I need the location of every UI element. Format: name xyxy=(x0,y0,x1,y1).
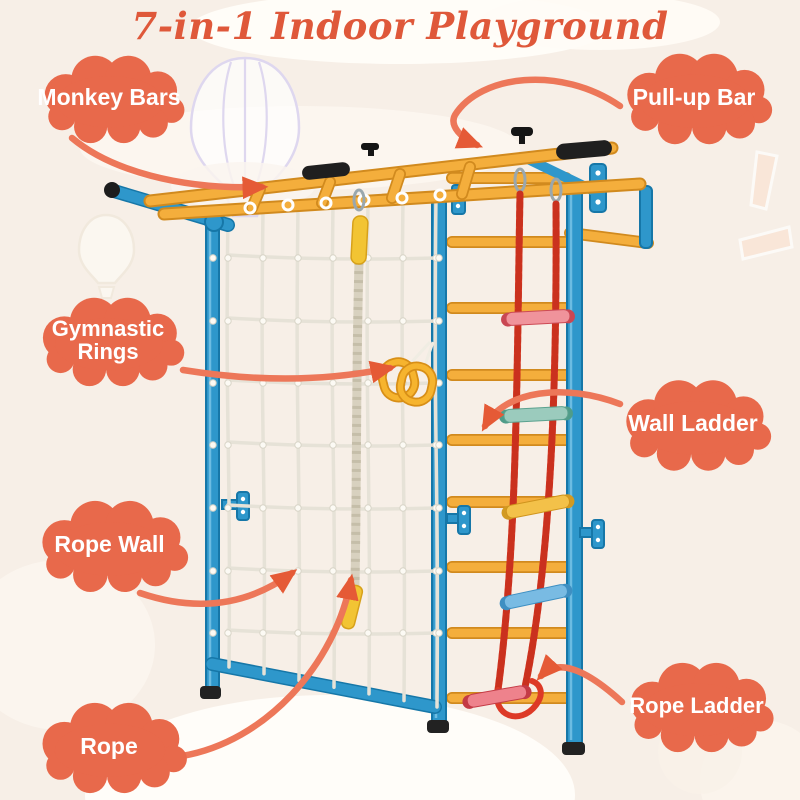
callout-gymnastic-rings: Gymnastic Rings xyxy=(27,295,189,388)
callout-label: Rope Ladder xyxy=(615,660,778,754)
callout-rope: Rope xyxy=(28,700,190,795)
callout-rope-wall: Rope Wall xyxy=(28,498,191,594)
callout-rope-ladder: Rope Ladder xyxy=(615,660,778,754)
gymnastic-rings-arrow xyxy=(183,368,390,379)
callout-wall-ladder: Wall Ladder xyxy=(612,377,774,473)
wall-ladder-arrow xyxy=(485,392,620,426)
callout-monkey-bars: Monkey Bars xyxy=(28,53,190,145)
callout-label: Rope Wall xyxy=(28,498,191,594)
callout-label: Gymnastic Rings xyxy=(27,295,189,388)
pull-up-bar-arrow xyxy=(454,80,620,145)
page-title: 7-in-1 Indoor Playground xyxy=(0,4,800,48)
callout-pull-up-bar: Pull-up Bar xyxy=(613,50,775,147)
callout-label: Rope xyxy=(28,700,190,795)
callout-label: Pull-up Bar xyxy=(613,50,775,147)
callout-label: Wall Ladder xyxy=(612,377,774,473)
rope-ladder-arrow xyxy=(541,667,622,702)
callout-label: Monkey Bars xyxy=(28,53,190,145)
monkey-bars-arrow xyxy=(72,138,262,187)
product-diagram: 7-in-1 Indoor Playground Monkey Bars Pul… xyxy=(0,0,800,800)
